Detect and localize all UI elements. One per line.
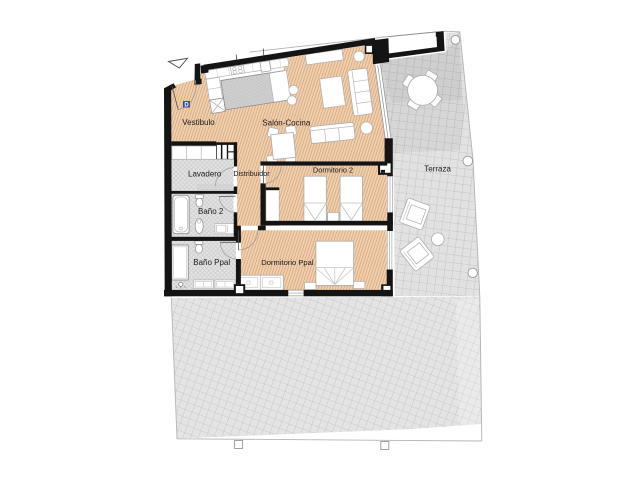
svg-text:Dormitorio Ppal: Dormitorio Ppal [261, 258, 314, 267]
svg-text:Baño Ppal: Baño Ppal [193, 258, 230, 267]
svg-text:Lavadero: Lavadero [188, 170, 222, 179]
svg-text:Salón-Cocina: Salón-Cocina [262, 118, 311, 127]
svg-text:D: D [184, 103, 189, 109]
svg-text:Distribuidor: Distribuidor [233, 169, 270, 178]
svg-text:Vestibulo: Vestibulo [182, 118, 215, 127]
svg-text:Terraza: Terraza [424, 165, 451, 174]
svg-text:Baño 2: Baño 2 [198, 207, 224, 216]
svg-text:Dormitorio 2: Dormitorio 2 [313, 166, 353, 175]
